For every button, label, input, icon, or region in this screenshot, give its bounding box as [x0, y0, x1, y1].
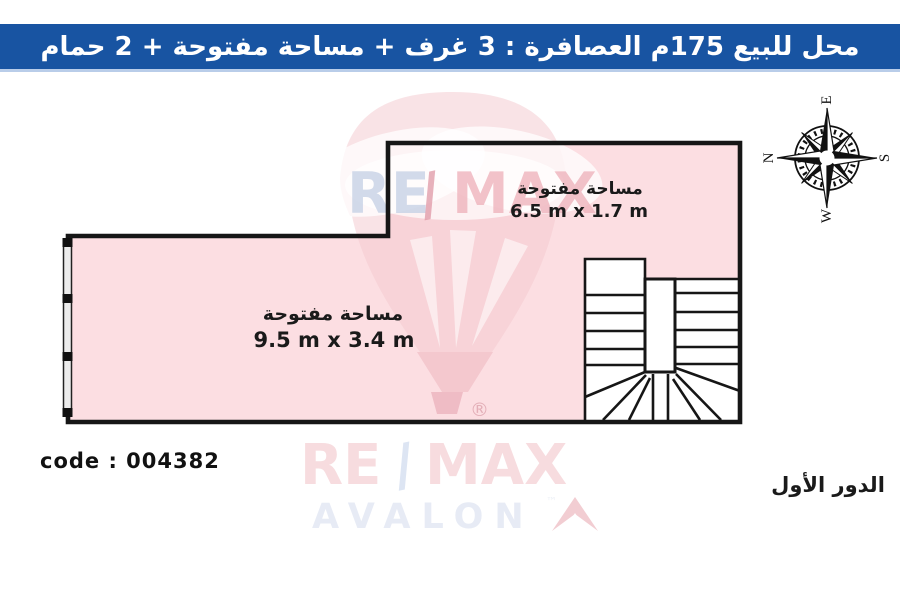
- floor-label: الدور الأول: [771, 473, 885, 497]
- watermark-re-lower: RE: [300, 433, 381, 498]
- watermark-slash-lower: /: [387, 431, 421, 499]
- main-area-label: مساحة مفتوحة: [263, 303, 403, 325]
- compass-e: E: [819, 95, 835, 104]
- upper-area-label: مساحة مفتوحة: [517, 179, 643, 199]
- window-glass: [64, 240, 72, 416]
- registered-mark: ®: [470, 399, 489, 421]
- compass-hub: [820, 151, 835, 166]
- compass-w: W: [819, 208, 835, 223]
- main-area-size: 9.5 m x 3.4 m: [254, 328, 415, 352]
- staircase: [585, 259, 741, 420]
- watermark-tm: ™: [546, 495, 557, 508]
- window-mullion: [63, 294, 73, 303]
- window-mullion: [63, 352, 73, 361]
- compass-rose: E N S W: [757, 88, 897, 228]
- watermark-avalon: AVALON: [312, 497, 535, 537]
- window-mullion: [63, 408, 73, 417]
- brand-watermark: RE / MAX AVALON ™: [300, 431, 598, 537]
- window-mullion: [63, 238, 73, 247]
- storefront-window: [63, 238, 73, 417]
- compass-s: S: [877, 154, 893, 162]
- watermark-max-lower: MAX: [425, 433, 567, 498]
- upper-area-size: 6.5 m x 1.7 m: [510, 201, 648, 222]
- property-code: code : 004382: [40, 449, 220, 473]
- stair-landing-column: [645, 279, 675, 372]
- compass-n: N: [761, 152, 777, 163]
